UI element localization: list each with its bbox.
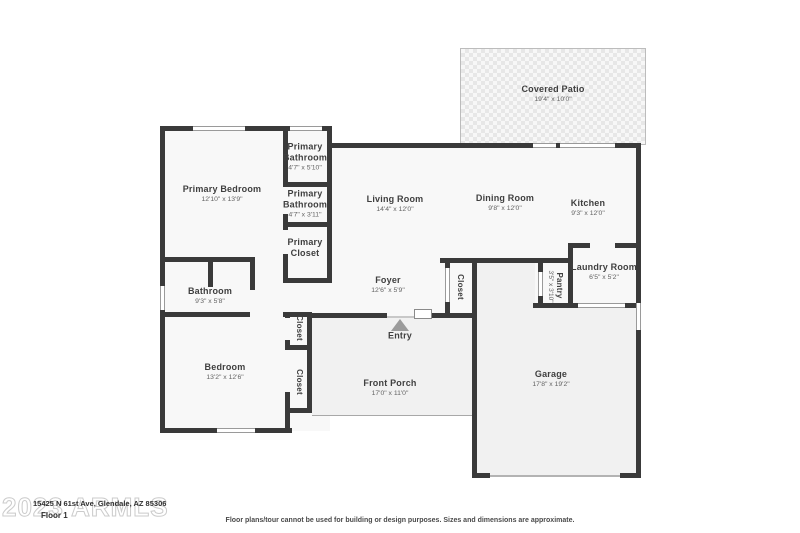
door-opening	[636, 303, 641, 330]
room-label-entry: Entry	[388, 331, 412, 342]
window	[560, 143, 615, 148]
room-label-closet-hall: Closet	[294, 315, 304, 341]
room-name: Covered Patio	[521, 84, 584, 95]
room-label-bedroom: Bedroom 13'2" x 12'6"	[205, 362, 246, 382]
room-dimensions: 17'8" x 19'2"	[532, 381, 569, 389]
wall-segment	[310, 313, 387, 318]
room-name: Garage	[532, 369, 569, 380]
room-label-bathroom: Bathroom 9'3" x 5'8"	[188, 286, 232, 306]
room-label-covered-patio: Covered Patio 19'4" x 10'0"	[521, 84, 584, 104]
room-label-living-room: Living Room 14'4" x 12'0"	[367, 194, 424, 214]
window	[217, 428, 255, 433]
window	[533, 143, 556, 148]
room-label-pantry: Pantry 3'5" x 3'10"	[546, 269, 564, 302]
room-name: Primary Bedroom	[183, 184, 262, 195]
garage-door-line	[490, 475, 620, 477]
wall-segment	[285, 392, 290, 413]
room-label-garage: Garage 17'8" x 19'2"	[532, 369, 569, 389]
wall-segment	[160, 312, 250, 317]
room-dimensions: 9'3" x 5'8"	[188, 298, 232, 306]
room-label-primary-bathroom-1: Primary Bathroom 4'7" x 5'10"	[272, 142, 338, 173]
disclaimer-text: Floor plans/tour cannot be used for buil…	[0, 517, 800, 524]
room-dimensions: 9'8" x 12'0"	[476, 205, 534, 213]
room-name: Primary Bathroom	[272, 142, 338, 164]
room-dimensions: 12'6" x 5'9"	[371, 287, 405, 295]
room-name: Bathroom	[188, 286, 232, 297]
wall-segment	[573, 243, 590, 248]
wall-segment	[636, 330, 641, 478]
address-text: 15425 N 61st Ave, Glendale, AZ 85306	[33, 499, 166, 508]
door-opening	[445, 268, 450, 302]
room-label-primary-closet: Primary Closet	[272, 237, 338, 259]
wall-segment	[283, 222, 332, 227]
room-dimensions: 4'7" x 3'11"	[272, 211, 338, 219]
room-name: Primary Closet	[272, 237, 338, 259]
door-opening	[538, 272, 543, 296]
entry-threshold	[387, 316, 414, 318]
room-label-dining-room: Dining Room 9'8" x 12'0"	[476, 193, 534, 213]
room-dimensions: 19'4" x 10'0"	[521, 96, 584, 104]
wall-segment	[472, 258, 477, 478]
room-label-primary-bedroom: Primary Bedroom 12'10" x 13'9"	[183, 184, 262, 204]
room-name: Dining Room	[476, 193, 534, 204]
room-name: Foyer	[371, 275, 405, 286]
room-name: Closet	[294, 369, 304, 395]
room-name: Closet	[294, 315, 304, 341]
wall-segment	[472, 473, 490, 478]
room-dimensions: 9'3" x 12'0"	[571, 210, 605, 218]
wall-segment	[440, 258, 573, 263]
room-dimensions: 12'10" x 13'9"	[183, 196, 262, 204]
room-dimensions: 3'5" x 3'10"	[546, 270, 554, 302]
room-dimensions: 4'7" x 5'10"	[272, 164, 338, 172]
door-opening	[578, 303, 625, 308]
room-name: Living Room	[367, 194, 424, 205]
wall-segment	[615, 243, 641, 248]
room-label-kitchen: Kitchen 9'3" x 12'0"	[571, 198, 605, 218]
window	[290, 126, 322, 131]
window	[193, 126, 245, 131]
room-label-laundry-room: Laundry Room 6'5" x 5'2"	[571, 262, 637, 282]
room-name: Kitchen	[571, 198, 605, 209]
floor-plan: Covered Patio 19'4" x 10'0" Primary Bedr…	[0, 0, 800, 533]
wall-segment	[445, 302, 450, 318]
wall-segment	[283, 278, 332, 283]
room-dimensions: 17'0" x 11'0"	[363, 390, 416, 398]
wall-segment	[285, 345, 307, 350]
room-label-closet-bedroom: Closet	[294, 369, 304, 395]
room-dimensions: 13'2" x 12'6"	[205, 374, 246, 382]
room-name: Pantry	[554, 269, 564, 302]
room-name: Laundry Room	[571, 262, 637, 273]
room-label-closet-foyer: Closet	[455, 274, 465, 300]
wall-segment	[250, 257, 255, 290]
wall-segment	[445, 258, 450, 268]
room-name: Primary Bathroom	[272, 189, 338, 211]
window	[160, 286, 165, 310]
room-name: Front Porch	[363, 378, 416, 389]
wall-segment	[160, 126, 165, 433]
room-label-primary-bathroom-2: Primary Bathroom 4'7" x 3'11"	[272, 189, 338, 220]
room-label-foyer: Foyer 12'6" x 5'9"	[371, 275, 405, 295]
wall-segment	[307, 312, 312, 413]
wall-segment	[533, 303, 578, 308]
wall-segment	[432, 313, 472, 318]
room-label-front-porch: Front Porch 17'0" x 11'0"	[363, 378, 416, 398]
entry-door-symbol	[414, 309, 432, 319]
room-name: Closet	[455, 274, 465, 300]
wall-segment	[283, 182, 332, 187]
room-dimensions: 6'5" x 5'2"	[571, 274, 637, 282]
room-name: Entry	[388, 331, 412, 342]
wall-segment	[538, 258, 543, 272]
room-name: Bedroom	[205, 362, 246, 373]
entry-direction-arrow	[391, 319, 409, 331]
wall-segment	[208, 257, 213, 287]
wall-segment	[620, 473, 641, 478]
room-dimensions: 14'4" x 12'0"	[367, 206, 424, 214]
